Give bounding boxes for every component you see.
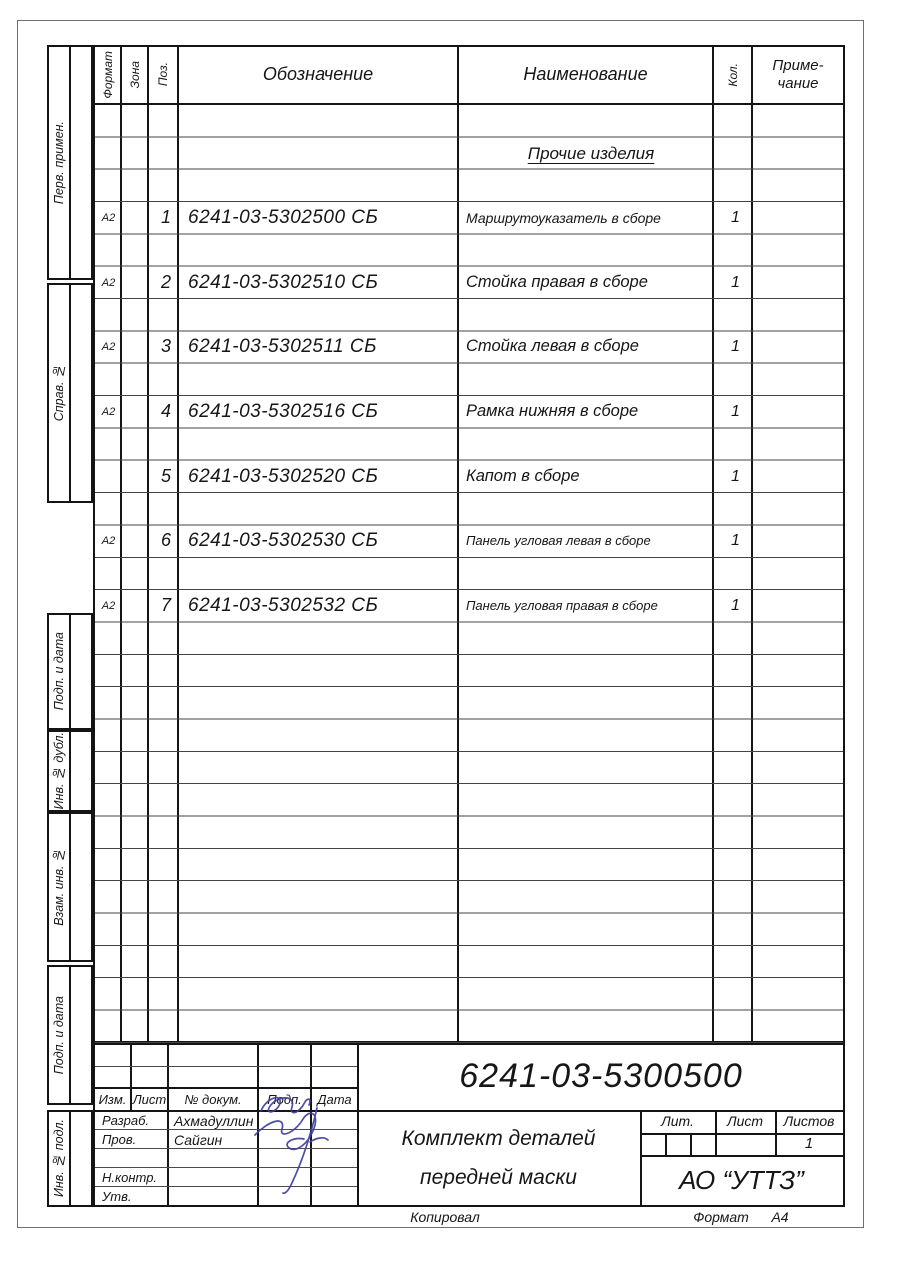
signature-scribble [252,1090,357,1200]
role-label: Утв. [97,1188,165,1205]
header-pos: Поз. [149,46,177,103]
format-label: Формат [688,1209,754,1225]
tb-line [95,1066,357,1067]
role-name: Ахмадуллин [169,1112,255,1129]
table-row: 5 6241-03-5302520 СБ Капот в сборе 1 [95,461,843,492]
drawing-title: Комплект деталей передней маски [359,1112,638,1205]
spec-row-lines [95,105,843,1043]
header-name: Наименование [459,46,712,103]
tb-lit-subdivider [690,1133,692,1155]
stamp-vzam-inv: Взам. инв. № [47,812,93,962]
sheets-label: Листов [777,1110,841,1131]
sheet-label: Лист [717,1110,773,1131]
table-row: А2 2 6241-03-5302510 СБ Стойка правая в … [95,267,843,298]
format-value: А4 [760,1209,800,1225]
table-row: А2 7 6241-03-5302532 СБ Панель угловая п… [95,590,843,621]
rev-header-list: Лист [132,1089,167,1110]
section-title-row: Прочие изделия [95,138,843,169]
role-label: Пров. [97,1131,165,1148]
role-name: Сайгин [169,1131,255,1148]
stamp-perv-primen: Перв. примен. [47,45,93,280]
stamp-inv-podl: Инв. № подл. [47,1110,93,1207]
role-label: Н.контр. [97,1169,165,1186]
role-label: Разраб. [97,1112,165,1129]
sheets-value: 1 [777,1133,841,1153]
header-zone: Зона [122,46,147,103]
stamp-podp-data-2: Подп. и дата [47,965,93,1105]
table-row: А2 3 6241-03-5302511 СБ Стойка левая в с… [95,331,843,362]
table-row: А2 6 6241-03-5302530 СБ Панель угловая л… [95,525,843,556]
table-row: А2 4 6241-03-5302516 СБ Рамка нижняя в с… [95,396,843,427]
stamp-inv-dubl: Инв. № дубл. [47,730,93,812]
copied-label: Копировал [380,1209,510,1225]
doc-number: 6241-03-5300500 [359,1044,843,1109]
header-format: Формат [95,46,120,103]
stamp-podp-data-1: Подп. и дата [47,613,93,730]
tb-lit-subdivider [665,1133,667,1155]
section-title: Прочие изделия [461,144,716,164]
drawing-title-line1: Комплект деталей [402,1127,596,1151]
header-note: Приме-чание [753,46,843,103]
lit-label: Лит. [642,1110,713,1131]
rev-header-izm: Изм. [95,1089,130,1110]
header-qty: Кол. [714,46,751,103]
rev-header-dokum: № докум. [169,1089,257,1110]
header-designation: Обозначение [179,46,457,103]
table-row: А2 1 6241-03-5302500 СБ Маршрутоуказател… [95,202,843,233]
stamp-sprav-no: Справ. № [47,283,93,503]
drawing-title-line2: передней маски [420,1166,577,1190]
company-name: АО “УТТЗ” [642,1155,841,1205]
